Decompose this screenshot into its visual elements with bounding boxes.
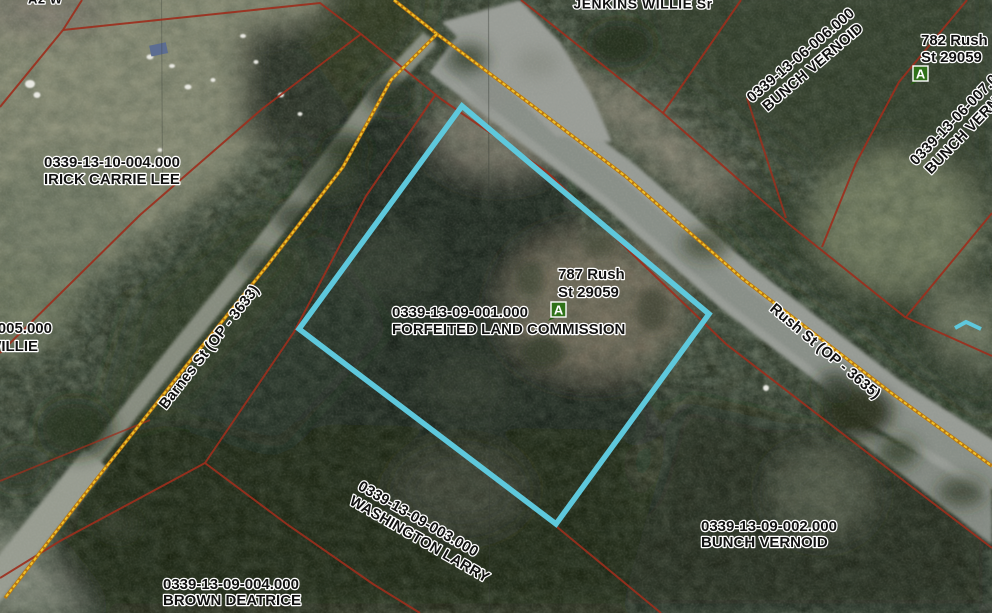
svg-text:A: A bbox=[554, 303, 564, 318]
svg-text:FORFEITED LAND COMMISSION: FORFEITED LAND COMMISSION bbox=[392, 321, 625, 338]
svg-text:0339-13-10-005.000: 0339-13-10-005.000 bbox=[0, 320, 52, 337]
svg-text:A2 W: A2 W bbox=[28, 0, 63, 7]
svg-text:787 Rush: 787 Rush bbox=[558, 266, 625, 283]
svg-text:ROBINSON WILLIE: ROBINSON WILLIE bbox=[0, 338, 38, 355]
svg-text:BUNCH VERNOID: BUNCH VERNOID bbox=[701, 534, 828, 551]
svg-text:782 Rush: 782 Rush bbox=[921, 32, 988, 49]
svg-text:JENKINS WILLIE Sr: JENKINS WILLIE Sr bbox=[573, 0, 712, 12]
svg-text:0339-13-10-004.000: 0339-13-10-004.000 bbox=[44, 154, 180, 171]
svg-text:BROWN DEATRICE: BROWN DEATRICE bbox=[163, 592, 301, 609]
svg-text:A: A bbox=[916, 67, 926, 82]
svg-text:0339-13-09-002.000: 0339-13-09-002.000 bbox=[701, 518, 837, 535]
svg-text:St 29059: St 29059 bbox=[558, 284, 619, 301]
svg-text:0339-13-09-004.000: 0339-13-09-004.000 bbox=[163, 576, 299, 593]
svg-text:IRICK CARRIE LEE: IRICK CARRIE LEE bbox=[44, 171, 180, 188]
svg-text:St 29059: St 29059 bbox=[921, 49, 982, 66]
svg-text:0339-13-09-001.000: 0339-13-09-001.000 bbox=[392, 304, 528, 321]
